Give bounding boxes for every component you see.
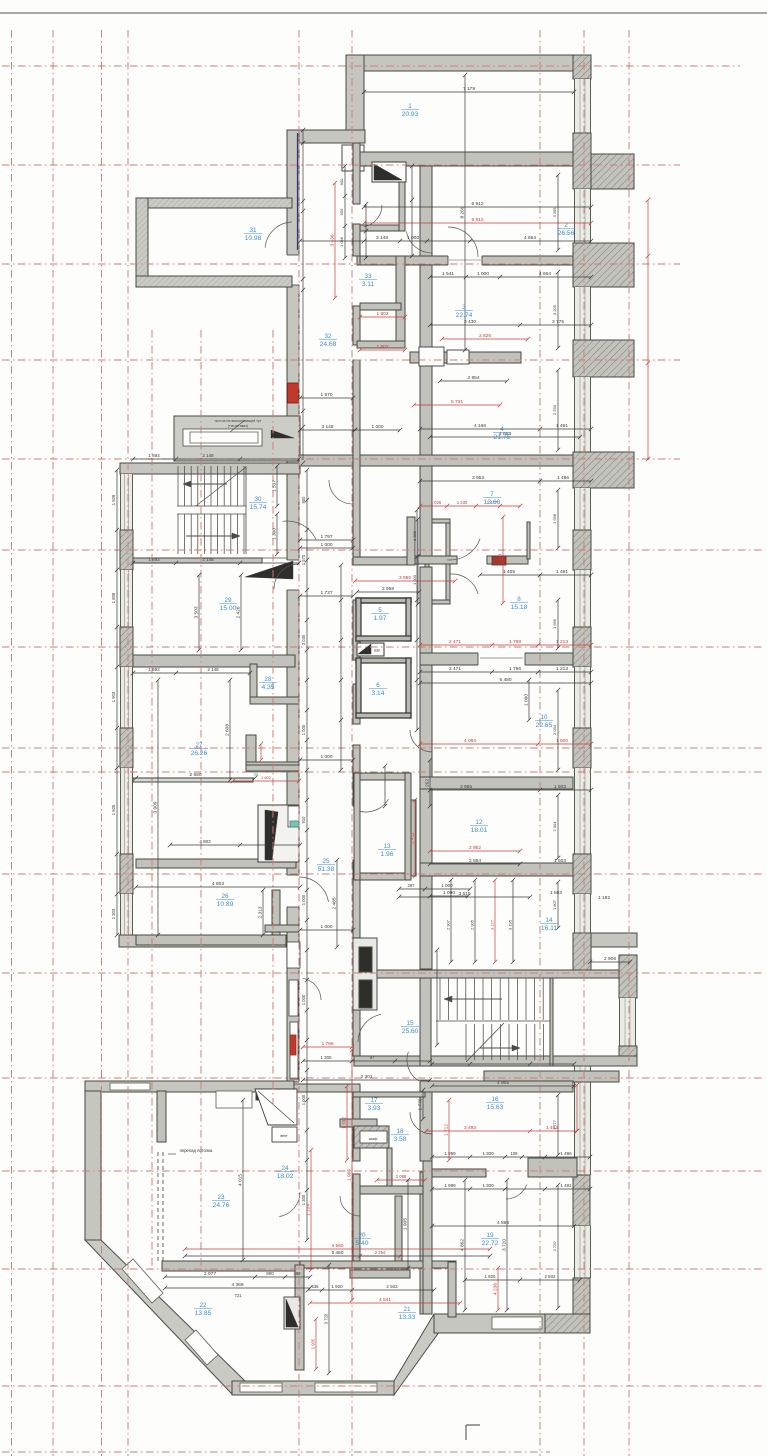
svg-text:1.96: 1.96 [380,851,393,858]
svg-text:3 720: 3 720 [502,1239,508,1251]
svg-text:15.18: 15.18 [511,604,528,611]
svg-text:1 905: 1 905 [311,1338,316,1349]
svg-text:2 148: 2 148 [207,667,219,672]
svg-text:4 803: 4 803 [199,839,211,844]
svg-text:2 148: 2 148 [202,453,214,458]
svg-text:23: 23 [217,1194,225,1201]
svg-text:4 560: 4 560 [331,1243,343,1249]
svg-text:3 148: 3 148 [376,235,388,241]
svg-text:1 000: 1 000 [320,924,332,930]
svg-text:29: 29 [224,597,232,604]
svg-text:15.00: 15.00 [220,605,237,612]
svg-text:2 680: 2 680 [189,772,201,778]
svg-text:8: 8 [517,596,521,603]
svg-text:2 148: 2 148 [202,557,214,562]
svg-text:4 803: 4 803 [212,881,224,887]
svg-text:8 269: 8 269 [460,206,466,218]
svg-text:1 807: 1 807 [552,899,557,910]
svg-text:28: 28 [264,676,272,683]
svg-text:2 004: 2 004 [552,821,557,832]
svg-text:6: 6 [376,682,380,689]
svg-text:2 294: 2 294 [375,1250,386,1255]
svg-text:22.72: 22.72 [482,1240,499,1247]
svg-text:1 602: 1 602 [261,775,272,780]
svg-text:910: 910 [301,816,306,824]
svg-text:2 301: 2 301 [360,1074,372,1080]
svg-text:22: 22 [199,1302,207,1309]
svg-text:1 213: 1 213 [556,666,568,672]
svg-text:3 030: 3 030 [301,634,306,645]
svg-text:1 503: 1 503 [550,890,562,896]
svg-text:1.97: 1.97 [373,615,386,622]
svg-text:ШВ: ШВ [374,649,380,653]
svg-text:2 502: 2 502 [545,1274,557,1279]
svg-text:2 907: 2 907 [446,919,451,930]
svg-text:5.40: 5.40 [355,1240,368,1247]
svg-text:1 000: 1 000 [301,724,306,735]
svg-text:24.68: 24.68 [320,341,337,348]
svg-text:2 958: 2 958 [382,586,394,592]
svg-text:1 090: 1 090 [443,890,455,896]
svg-text:13.85: 13.85 [195,1310,212,1317]
svg-text:1 300: 1 300 [272,528,278,540]
svg-text:13: 13 [383,843,391,850]
svg-text:1 000: 1 000 [477,271,489,277]
svg-text:900: 900 [266,1271,274,1276]
svg-text:1 503: 1 503 [554,858,566,864]
svg-text:13.33: 13.33 [399,1314,416,1321]
svg-text:25: 25 [322,858,330,865]
svg-text:1 182: 1 182 [598,895,610,901]
svg-text:6 812: 6 812 [471,217,483,223]
svg-text:1 732: 1 732 [342,1117,348,1129]
svg-text:(тип не вказ): (тип не вказ) [228,424,248,428]
svg-text:15.63: 15.63 [487,1104,504,1111]
svg-text:1 693: 1 693 [148,453,160,458]
svg-text:3 430: 3 430 [464,319,476,325]
svg-text:4 084: 4 084 [464,738,476,744]
svg-text:24: 24 [281,1165,289,1172]
svg-text:7: 7 [490,491,494,498]
svg-text:1 509: 1 509 [111,494,116,505]
svg-text:1 920: 1 920 [485,1274,497,1279]
svg-text:27: 27 [195,742,203,749]
svg-text:262: 262 [425,779,431,787]
svg-text:1 541: 1 541 [442,271,454,277]
svg-text:1 491: 1 491 [556,569,568,575]
svg-text:2 313: 2 313 [258,906,264,918]
svg-text:2 471: 2 471 [449,639,461,645]
svg-text:489: 489 [294,1271,302,1276]
svg-text:1 602: 1 602 [376,344,388,350]
svg-text:2: 2 [564,222,568,229]
svg-text:1 798: 1 798 [509,639,521,645]
svg-text:3 955: 3 955 [460,784,472,790]
svg-text:1 000: 1 000 [412,530,417,541]
svg-text:5 731: 5 731 [451,399,463,405]
svg-text:13.66: 13.66 [484,499,501,506]
svg-text:1 496: 1 496 [560,1151,572,1156]
svg-text:3.93: 3.93 [367,1105,380,1112]
svg-text:3 127: 3 127 [490,919,495,930]
svg-text:10.89: 10.89 [217,901,234,908]
svg-text:3 956: 3 956 [399,575,411,581]
svg-text:2 977: 2 977 [204,1271,216,1277]
svg-text:20: 20 [358,1232,366,1239]
svg-text:1 000: 1 000 [371,424,383,430]
svg-text:2 034: 2 034 [552,724,557,735]
svg-text:2 411: 2 411 [410,832,416,844]
svg-text:18: 18 [396,1128,404,1135]
svg-text:5: 5 [378,607,382,614]
svg-text:1 693: 1 693 [148,667,160,672]
svg-text:1 905: 1 905 [347,1169,353,1181]
svg-text:1 000: 1 000 [301,894,306,905]
svg-text:3: 3 [462,304,466,311]
svg-text:3 436: 3 436 [330,234,336,246]
svg-text:14: 14 [545,917,553,924]
svg-text:18.01: 18.01 [471,827,488,834]
svg-text:900: 900 [339,178,344,185]
svg-text:26: 26 [221,893,229,900]
svg-text:1 491: 1 491 [560,1183,572,1188]
svg-text:1 405: 1 405 [503,569,515,575]
svg-text:2 854: 2 854 [467,375,479,381]
svg-text:19: 19 [486,1232,494,1239]
svg-text:1 938: 1 938 [552,513,557,524]
svg-text:1 000: 1 000 [407,235,419,241]
svg-text:12: 12 [475,819,483,826]
svg-text:1 486: 1 486 [557,475,569,481]
svg-text:1 000: 1 000 [301,994,306,1005]
svg-text:16: 16 [491,1096,499,1103]
svg-text:3 720: 3 720 [324,1313,329,1324]
svg-text:4 905: 4 905 [497,1080,509,1086]
svg-text:1 899: 1 899 [444,1151,456,1156]
svg-text:17: 17 [370,1097,378,1104]
svg-text:1 605: 1 605 [111,804,116,815]
svg-text:1: 1 [408,103,412,110]
svg-text:2 426: 2 426 [236,606,242,618]
svg-text:1 000: 1 000 [441,883,453,888]
svg-text:21: 21 [403,1306,411,1313]
svg-text:1 797: 1 797 [320,534,332,540]
svg-text:3 510: 3 510 [458,891,470,897]
svg-text:1 712: 1 712 [444,1124,450,1136]
svg-text:1 046: 1 046 [339,236,344,247]
svg-text:1 905: 1 905 [403,1218,409,1230]
svg-text:3 909: 3 909 [153,801,159,813]
svg-text:97: 97 [370,1055,375,1060]
svg-text:1 124: 1 124 [306,1204,312,1216]
svg-text:15.74: 15.74 [250,504,267,511]
svg-text:1 776: 1 776 [418,1098,424,1110]
svg-text:109: 109 [511,1151,519,1156]
svg-text:21.75: 21.75 [494,434,511,441]
svg-text:2 930: 2 930 [552,404,557,415]
svg-text:4: 4 [500,426,504,433]
svg-text:3 493: 3 493 [464,1125,476,1131]
svg-text:1 737: 1 737 [320,590,332,596]
svg-text:2 905: 2 905 [470,919,475,930]
svg-text:1 777: 1 777 [552,1119,557,1130]
svg-text:3 503: 3 503 [194,606,200,618]
svg-text:3 205: 3 205 [552,207,557,218]
svg-text:1 026: 1 026 [431,500,442,505]
svg-text:1 000: 1 000 [412,574,417,585]
svg-text:16.11: 16.11 [541,925,558,932]
svg-text:32: 32 [324,333,332,340]
svg-text:5 460: 5 460 [331,1250,343,1256]
svg-text:4 368: 4 368 [231,1282,243,1288]
svg-text:10: 10 [540,714,548,721]
svg-text:2 864: 2 864 [469,858,481,864]
svg-text:1 503: 1 503 [554,784,566,790]
svg-text:1 000: 1 000 [320,542,332,548]
svg-text:4 664: 4 664 [539,271,551,277]
svg-text:1 000: 1 000 [498,554,504,566]
svg-text:2 471: 2 471 [449,666,461,672]
svg-text:4 541: 4 541 [379,1297,391,1303]
svg-text:2 826: 2 826 [479,333,491,339]
svg-text:20.93: 20.93 [402,111,419,118]
svg-text:3.11: 3.11 [362,281,375,288]
svg-text:3 963: 3 963 [472,475,484,481]
svg-text:3 195: 3 195 [508,919,513,930]
svg-text:1 230: 1 230 [457,500,468,505]
svg-text:1 570: 1 570 [301,554,306,565]
svg-text:1 903: 1 903 [111,691,116,702]
svg-text:721: 721 [235,1293,243,1298]
svg-text:1 693: 1 693 [148,557,160,562]
svg-text:1 300: 1 300 [321,1055,333,1060]
svg-text:900: 900 [301,496,306,504]
svg-text:4 898: 4 898 [497,1220,509,1226]
svg-text:3 720: 3 720 [552,1241,557,1252]
svg-text:перепад потолка: перепад потолка [180,1148,213,1153]
svg-text:2 485: 2 485 [332,897,338,909]
svg-text:6 912: 6 912 [471,201,483,207]
svg-text:1 796: 1 796 [509,666,521,672]
svg-text:22.65: 22.65 [536,722,553,729]
svg-text:1 000: 1 000 [320,754,332,760]
svg-text:51.38: 51.38 [318,866,335,873]
svg-text:шкаф: шкаф [369,1137,378,1141]
svg-text:30: 30 [254,496,262,503]
svg-text:3.58: 3.58 [393,1136,406,1143]
svg-text:1 999: 1 999 [444,1183,456,1188]
svg-text:вент: вент [280,1134,288,1138]
svg-text:24.76: 24.76 [213,1202,230,1209]
svg-text:287: 287 [408,883,416,888]
svg-text:26.26: 26.26 [191,750,208,757]
svg-text:2 503: 2 503 [386,1284,398,1289]
svg-text:22.74: 22.74 [456,312,473,319]
svg-text:10.98: 10.98 [245,235,262,242]
svg-text:3 205: 3 205 [552,304,557,315]
svg-text:538: 538 [312,1284,320,1289]
svg-text:1 537: 1 537 [272,480,278,492]
svg-text:1 000: 1 000 [301,1094,306,1105]
svg-text:1 570: 1 570 [320,392,332,398]
svg-text:пол на на вискользящей тут: пол на на вискользящей тут [215,419,262,423]
svg-text:2 908: 2 908 [604,956,616,962]
svg-text:650: 650 [339,208,344,215]
svg-text:1 696: 1 696 [552,618,557,629]
svg-text:5 480: 5 480 [499,677,511,683]
svg-text:15: 15 [406,1020,414,1027]
svg-text:4 166: 4 166 [474,423,486,429]
svg-text:1 796: 1 796 [321,1041,333,1047]
svg-text:18.02: 18.02 [277,1173,294,1180]
svg-text:25.60: 25.60 [402,1028,419,1035]
svg-text:4.35: 4.35 [261,684,274,691]
svg-text:1 808: 1 808 [111,592,116,603]
svg-text:33: 33 [364,273,372,280]
svg-text:31: 31 [249,227,257,234]
svg-text:1 303: 1 303 [111,908,116,919]
svg-text:4 664: 4 664 [524,235,536,241]
svg-text:4 236: 4 236 [493,1283,499,1295]
svg-text:26.56: 26.56 [558,230,575,237]
svg-text:1 090: 1 090 [524,694,530,706]
svg-text:3.14: 3.14 [371,690,384,697]
svg-text:1 802: 1 802 [376,311,388,317]
svg-text:1 920: 1 920 [331,1284,343,1289]
svg-text:1 300: 1 300 [482,1183,494,1188]
svg-text:1 300: 1 300 [301,1194,306,1205]
svg-text:1 300: 1 300 [482,1151,494,1156]
svg-text:3 148: 3 148 [321,424,333,430]
svg-text:4 862: 4 862 [460,1239,466,1251]
svg-text:2 608: 2 608 [225,724,231,736]
svg-text:2 952: 2 952 [469,845,481,851]
svg-text:4 015: 4 015 [238,1174,244,1186]
svg-text:2 088: 2 088 [396,1174,407,1179]
